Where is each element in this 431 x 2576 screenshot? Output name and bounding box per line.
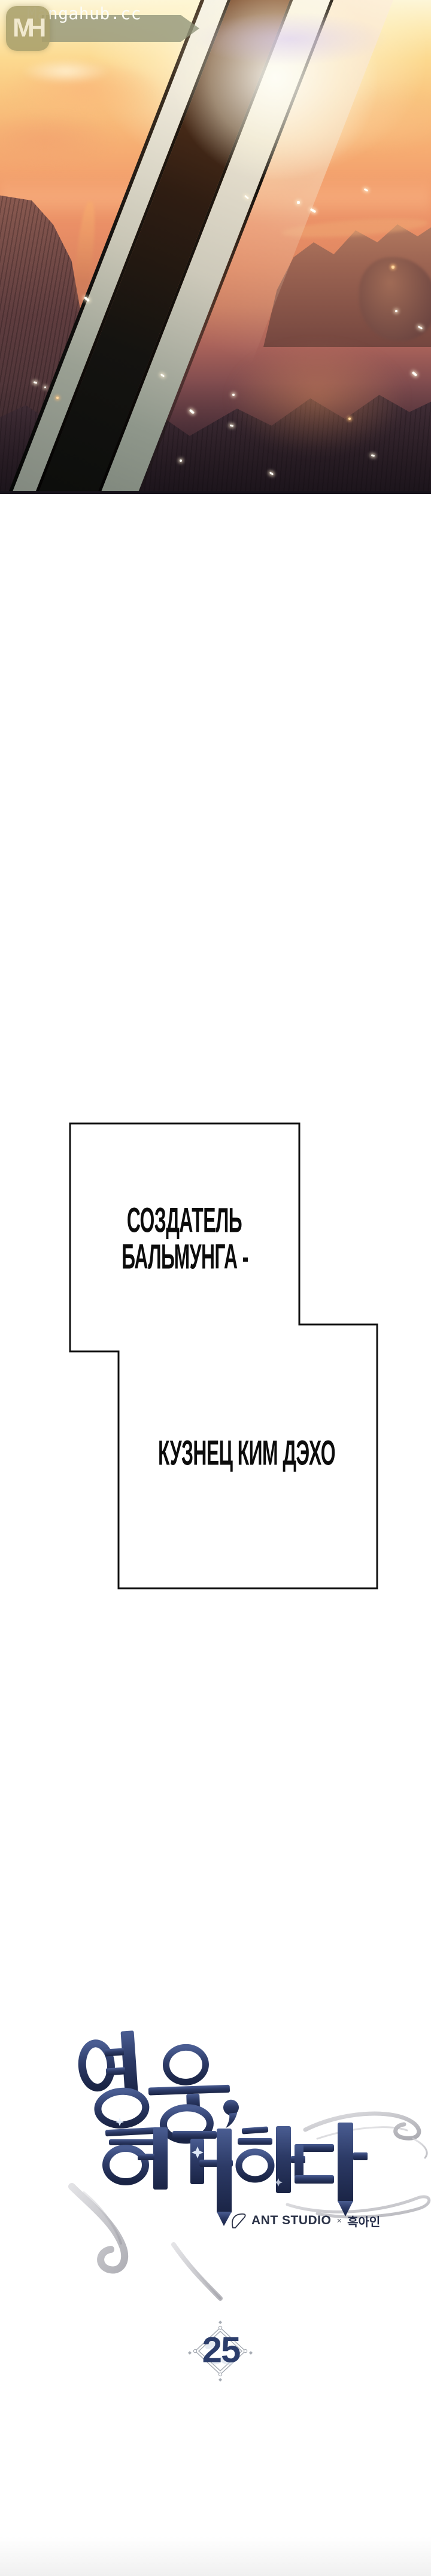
spark <box>232 394 235 396</box>
spark <box>391 266 394 269</box>
studio-name: ANT STUDIO <box>251 2213 331 2228</box>
author-name: 흑아인 <box>347 2212 380 2230</box>
spark <box>56 397 59 399</box>
light-streak <box>192 12 389 66</box>
panel-bottom-edge <box>0 491 431 494</box>
spark <box>395 310 397 312</box>
spark <box>180 459 182 462</box>
cloud-highlight <box>21 59 111 84</box>
credits-line: ANT STUDIO × 흑아인 <box>230 2210 380 2231</box>
mh-monogram: MH <box>13 13 56 43</box>
spark <box>348 418 351 420</box>
spark <box>412 372 417 377</box>
mh-logo-icon[interactable]: MH <box>6 6 50 51</box>
bubble1-line2: БАЛЬМУНГА - <box>122 1237 248 1277</box>
ant-studio-icon <box>230 2212 246 2229</box>
artwork-panel: Mangahub.cc MH <box>0 0 431 494</box>
bottom-fade <box>0 2537 431 2576</box>
chapter-number: 25 <box>202 2330 240 2371</box>
speech-bubble-union <box>69 1122 380 1591</box>
webtoon-page: Mangahub.cc MH СОЗДАТЕЛЬ БАЛЬМУНГА - КУЗ… <box>0 0 431 2576</box>
site-watermark[interactable]: Mangahub.cc MH <box>0 0 215 60</box>
bubble-outline <box>70 1123 377 1588</box>
spark <box>297 201 300 204</box>
series-title-text: 영웅, 회귀하다 <box>72 2028 395 2213</box>
bubble1-line1: СОЗДАТЕЛЬ <box>127 1201 242 1241</box>
credits-separator: × <box>336 2216 342 2226</box>
bubble2-line1: КУЗНЕЦ КИМ ДЭХО <box>158 1433 335 1473</box>
spark <box>44 386 46 388</box>
